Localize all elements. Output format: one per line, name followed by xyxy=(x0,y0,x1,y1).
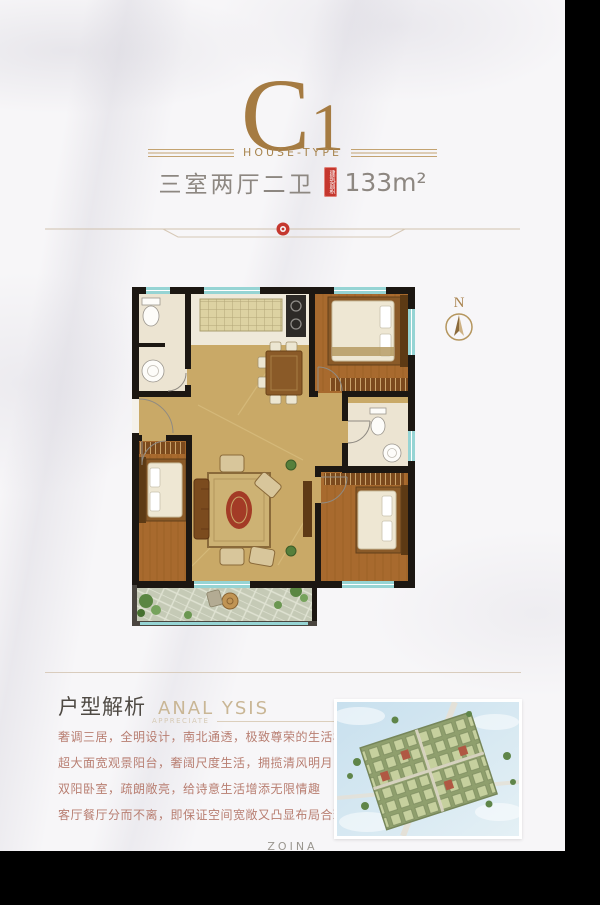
compass-label: N xyxy=(454,295,465,311)
community-aerial-image xyxy=(334,699,522,839)
triple-line-right-icon xyxy=(351,149,437,157)
bed-top-right xyxy=(328,295,410,367)
house-type-label: HOUSE-TYPE xyxy=(243,146,342,159)
wardrobe-bottom-left xyxy=(137,442,185,454)
area-row: 三室两厅二卫 建筑面积 133m² xyxy=(10,165,565,199)
analysis-body: 奢调三居，全明设计，南北通透，极致尊荣的生活格局 超大面宽观景阳台，奢阔尺度生活… xyxy=(58,731,338,835)
poster-content: C1 HOUSE-TYPE 三室两厅二卫 建筑面积 133m² xyxy=(0,0,565,852)
floor-plan-image: N xyxy=(128,285,488,631)
analysis-paragraph: 双阳卧室，疏朗敞亮，给诗意生活增添无限情趣 xyxy=(58,783,338,796)
area-seal-badge: 建筑面积 xyxy=(324,167,337,197)
bottom-black-bar xyxy=(0,851,600,905)
analysis-subtitle-en: APPRECIATE xyxy=(152,717,209,725)
area-seal-text: 建筑面积 xyxy=(328,170,334,194)
poster-page: C1 HOUSE-TYPE 三室两厅二卫 建筑面积 133m² xyxy=(0,0,600,905)
area-value: 133m² xyxy=(344,168,426,197)
house-type-row: HOUSE-TYPE xyxy=(10,146,565,159)
compass-icon: N xyxy=(446,295,472,340)
analysis-divider-line xyxy=(45,672,521,673)
right-black-bar xyxy=(565,0,600,905)
layout-text: 三室两厅二卫 xyxy=(158,165,314,199)
analysis-title-cn: 户型解析 xyxy=(58,691,146,721)
bed-bottom-left xyxy=(137,457,186,523)
bed-bottom-right xyxy=(356,485,410,555)
analysis-subheading: APPRECIATE xyxy=(152,717,345,725)
divider-ornament-icon xyxy=(277,223,290,236)
analysis-title-en: ANAL YSIS xyxy=(158,698,269,719)
kitchen-counter xyxy=(200,295,306,337)
analysis-paragraph: 客厅餐厅分而不离，即保证空间宽敞又凸显布局合理 xyxy=(58,809,338,822)
ornamental-divider xyxy=(0,222,565,244)
triple-line-left-icon xyxy=(148,149,234,157)
analysis-paragraph: 超大面宽观景阳台，奢阔尺度生活，拥揽清风明月 xyxy=(58,757,338,770)
wardrobe-bottom-right xyxy=(324,473,404,485)
analysis-subtitle-line xyxy=(217,721,345,722)
analysis-paragraph: 奢调三居，全明设计，南北通透，极致尊荣的生活格局 xyxy=(58,731,338,744)
